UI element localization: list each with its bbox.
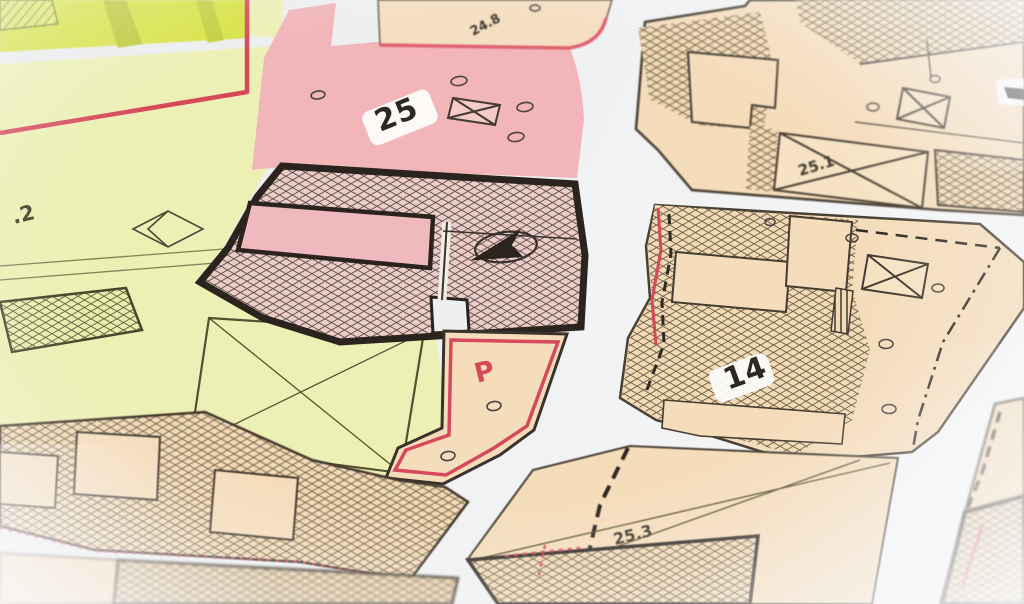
courtyard [74, 432, 160, 500]
cadastral-map-photo: .2 25 P [0, 0, 1024, 604]
block-25-3: 25.3 [467, 446, 898, 604]
courtyard [0, 452, 58, 508]
block-notch [431, 297, 469, 333]
hatched-area [746, 125, 778, 192]
parcel-chartreuse-field [0, 0, 284, 52]
map-canvas: .2 25 P [0, 0, 1024, 604]
parcel-shape [0, 553, 118, 604]
building-block [200, 166, 585, 342]
hatched-area [935, 150, 1024, 212]
courtyard [786, 216, 852, 292]
courtyard [210, 470, 298, 540]
parcel-far-right [940, 398, 1024, 604]
courtyard [672, 252, 790, 312]
hatched-area [0, 0, 58, 30]
block-14: 14 [620, 205, 1024, 462]
hatched-building [942, 496, 1024, 604]
